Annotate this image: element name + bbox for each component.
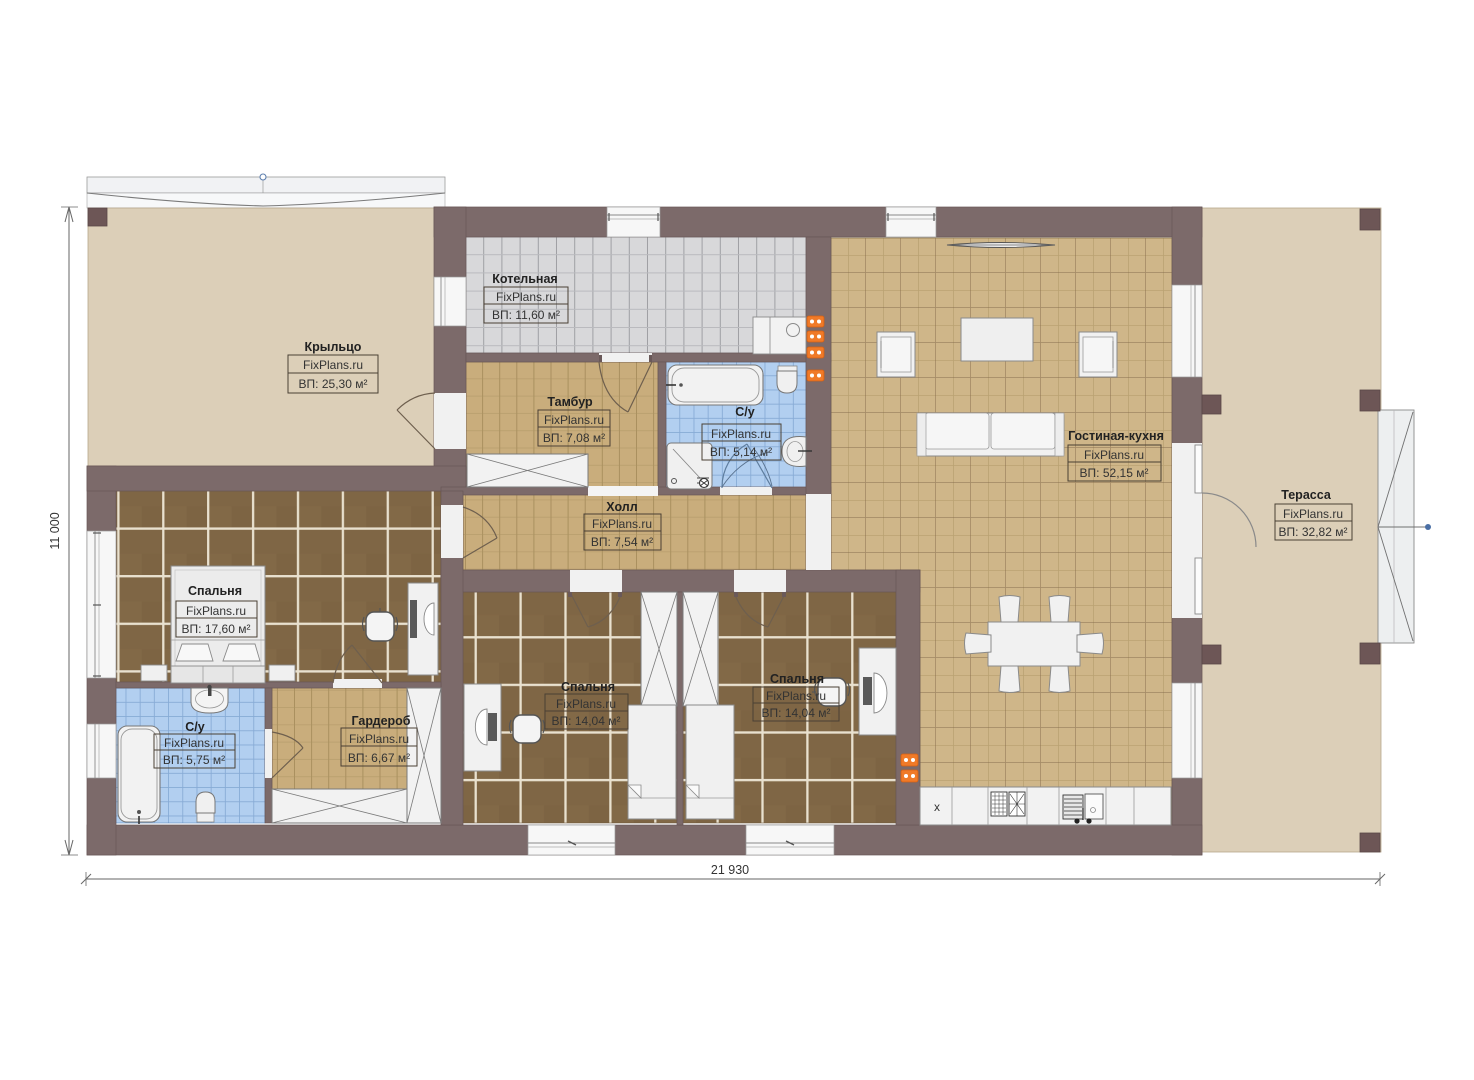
svg-text:FixPlans.ru: FixPlans.ru [711,427,771,441]
svg-text:Спальня: Спальня [561,680,615,694]
svg-text:ВП: 17,60 м²: ВП: 17,60 м² [182,622,251,636]
svg-text:ВП: 14,04 м²: ВП: 14,04 м² [762,706,831,720]
svg-text:FixPlans.ru: FixPlans.ru [164,736,224,750]
svg-text:ВП: 32,82 м²: ВП: 32,82 м² [1279,525,1348,539]
svg-text:x: x [934,800,940,814]
svg-text:С/у: С/у [185,720,205,734]
svg-text:FixPlans.ru: FixPlans.ru [592,517,652,531]
svg-text:Спальня: Спальня [188,584,242,598]
svg-text:ВП: 14,04 м²: ВП: 14,04 м² [552,714,621,728]
svg-text:FixPlans.ru: FixPlans.ru [186,604,246,618]
svg-text:ВП: 25,30 м²: ВП: 25,30 м² [299,377,368,391]
svg-text:FixPlans.ru: FixPlans.ru [544,413,604,427]
svg-text:ВП: 52,15 м²: ВП: 52,15 м² [1080,466,1149,480]
svg-text:ВП: 6,67 м²: ВП: 6,67 м² [348,751,410,765]
svg-text:FixPlans.ru: FixPlans.ru [303,358,363,372]
svg-text:Гардероб: Гардероб [351,714,410,728]
svg-text:Спальня: Спальня [770,672,824,686]
svg-text:FixPlans.ru: FixPlans.ru [349,732,409,746]
svg-text:11 000: 11 000 [48,512,62,549]
svg-text:Котельная: Котельная [492,272,557,286]
svg-text:Гостиная-кухня: Гостиная-кухня [1068,429,1164,443]
svg-text:21 930: 21 930 [711,863,749,877]
svg-text:ВП: 7,54 м²: ВП: 7,54 м² [591,535,653,549]
svg-text:ВП: 11,60 м²: ВП: 11,60 м² [492,308,560,322]
svg-text:FixPlans.ru: FixPlans.ru [556,697,616,711]
svg-text:С/у: С/у [735,405,755,419]
svg-text:Терасса: Терасса [1281,488,1332,502]
svg-text:FixPlans.ru: FixPlans.ru [496,290,556,304]
svg-text:ВП: 5,75 м²: ВП: 5,75 м² [163,753,225,767]
svg-text:Холл: Холл [606,500,637,514]
svg-text:ВП: 7,08 м²: ВП: 7,08 м² [543,431,605,445]
svg-text:FixPlans.ru: FixPlans.ru [1283,507,1343,521]
svg-text:FixPlans.ru: FixPlans.ru [1084,448,1144,462]
svg-text:FixPlans.ru: FixPlans.ru [766,689,826,703]
svg-text:ВП: 5,14 м²: ВП: 5,14 м² [710,445,772,459]
svg-text:Крыльцо: Крыльцо [305,340,362,354]
svg-text:Тамбур: Тамбур [547,395,593,409]
